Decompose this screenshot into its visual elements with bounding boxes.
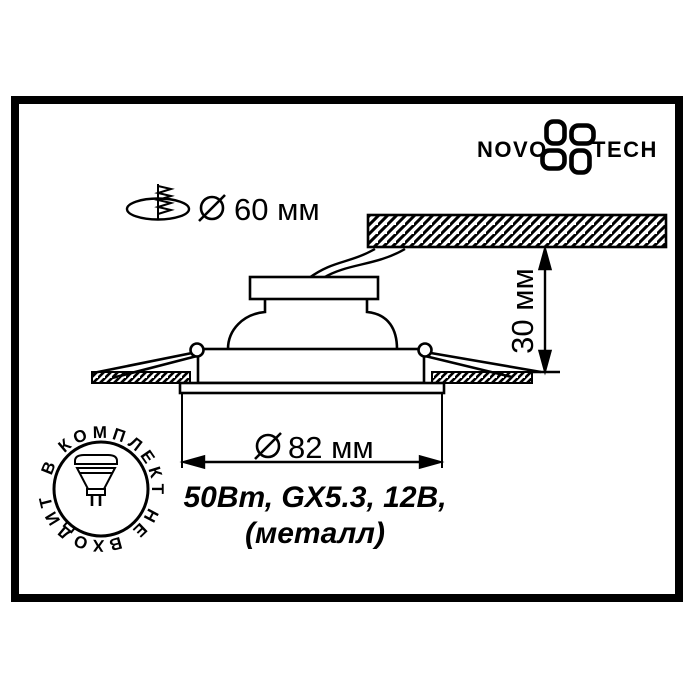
ceiling-cutout-icon [127, 184, 189, 220]
recessed-can [198, 349, 424, 383]
lamp-holder-bell [228, 298, 397, 349]
flange-diameter-label: 82 мм [288, 430, 374, 466]
cutout-diameter-label: 60 мм [234, 192, 320, 228]
ceiling-edge-right [432, 372, 532, 383]
recess-depth-arrow [540, 249, 551, 371]
supply-wires [309, 249, 405, 278]
diameter-icon [199, 195, 225, 221]
novotech-flower-icon [543, 122, 594, 173]
diameter-icon [255, 433, 281, 459]
spec-line-2: (металл) [115, 517, 515, 551]
logo-text-tech: TECH [592, 137, 658, 163]
page: В КОМПЛЕКТ НЕ ВХОДИТ NOVO TECH 60 мм 82 … [0, 0, 700, 700]
spring-clip-right [419, 344, 432, 357]
ceiling-section [368, 215, 666, 247]
ceiling-edge-left [92, 372, 190, 383]
recess-depth-label: 30 мм [505, 251, 539, 371]
spring-clip-left [191, 344, 204, 357]
mr16-lamp-icon [75, 455, 117, 506]
terminal-block [250, 277, 378, 299]
trim-ring [180, 383, 444, 393]
logo-text-novo: NOVO [477, 137, 548, 163]
spec-line-1: 50Вт, GX5.3, 12В, [115, 481, 515, 515]
technical-drawing: В КОМПЛЕКТ НЕ ВХОДИТ [0, 0, 700, 700]
